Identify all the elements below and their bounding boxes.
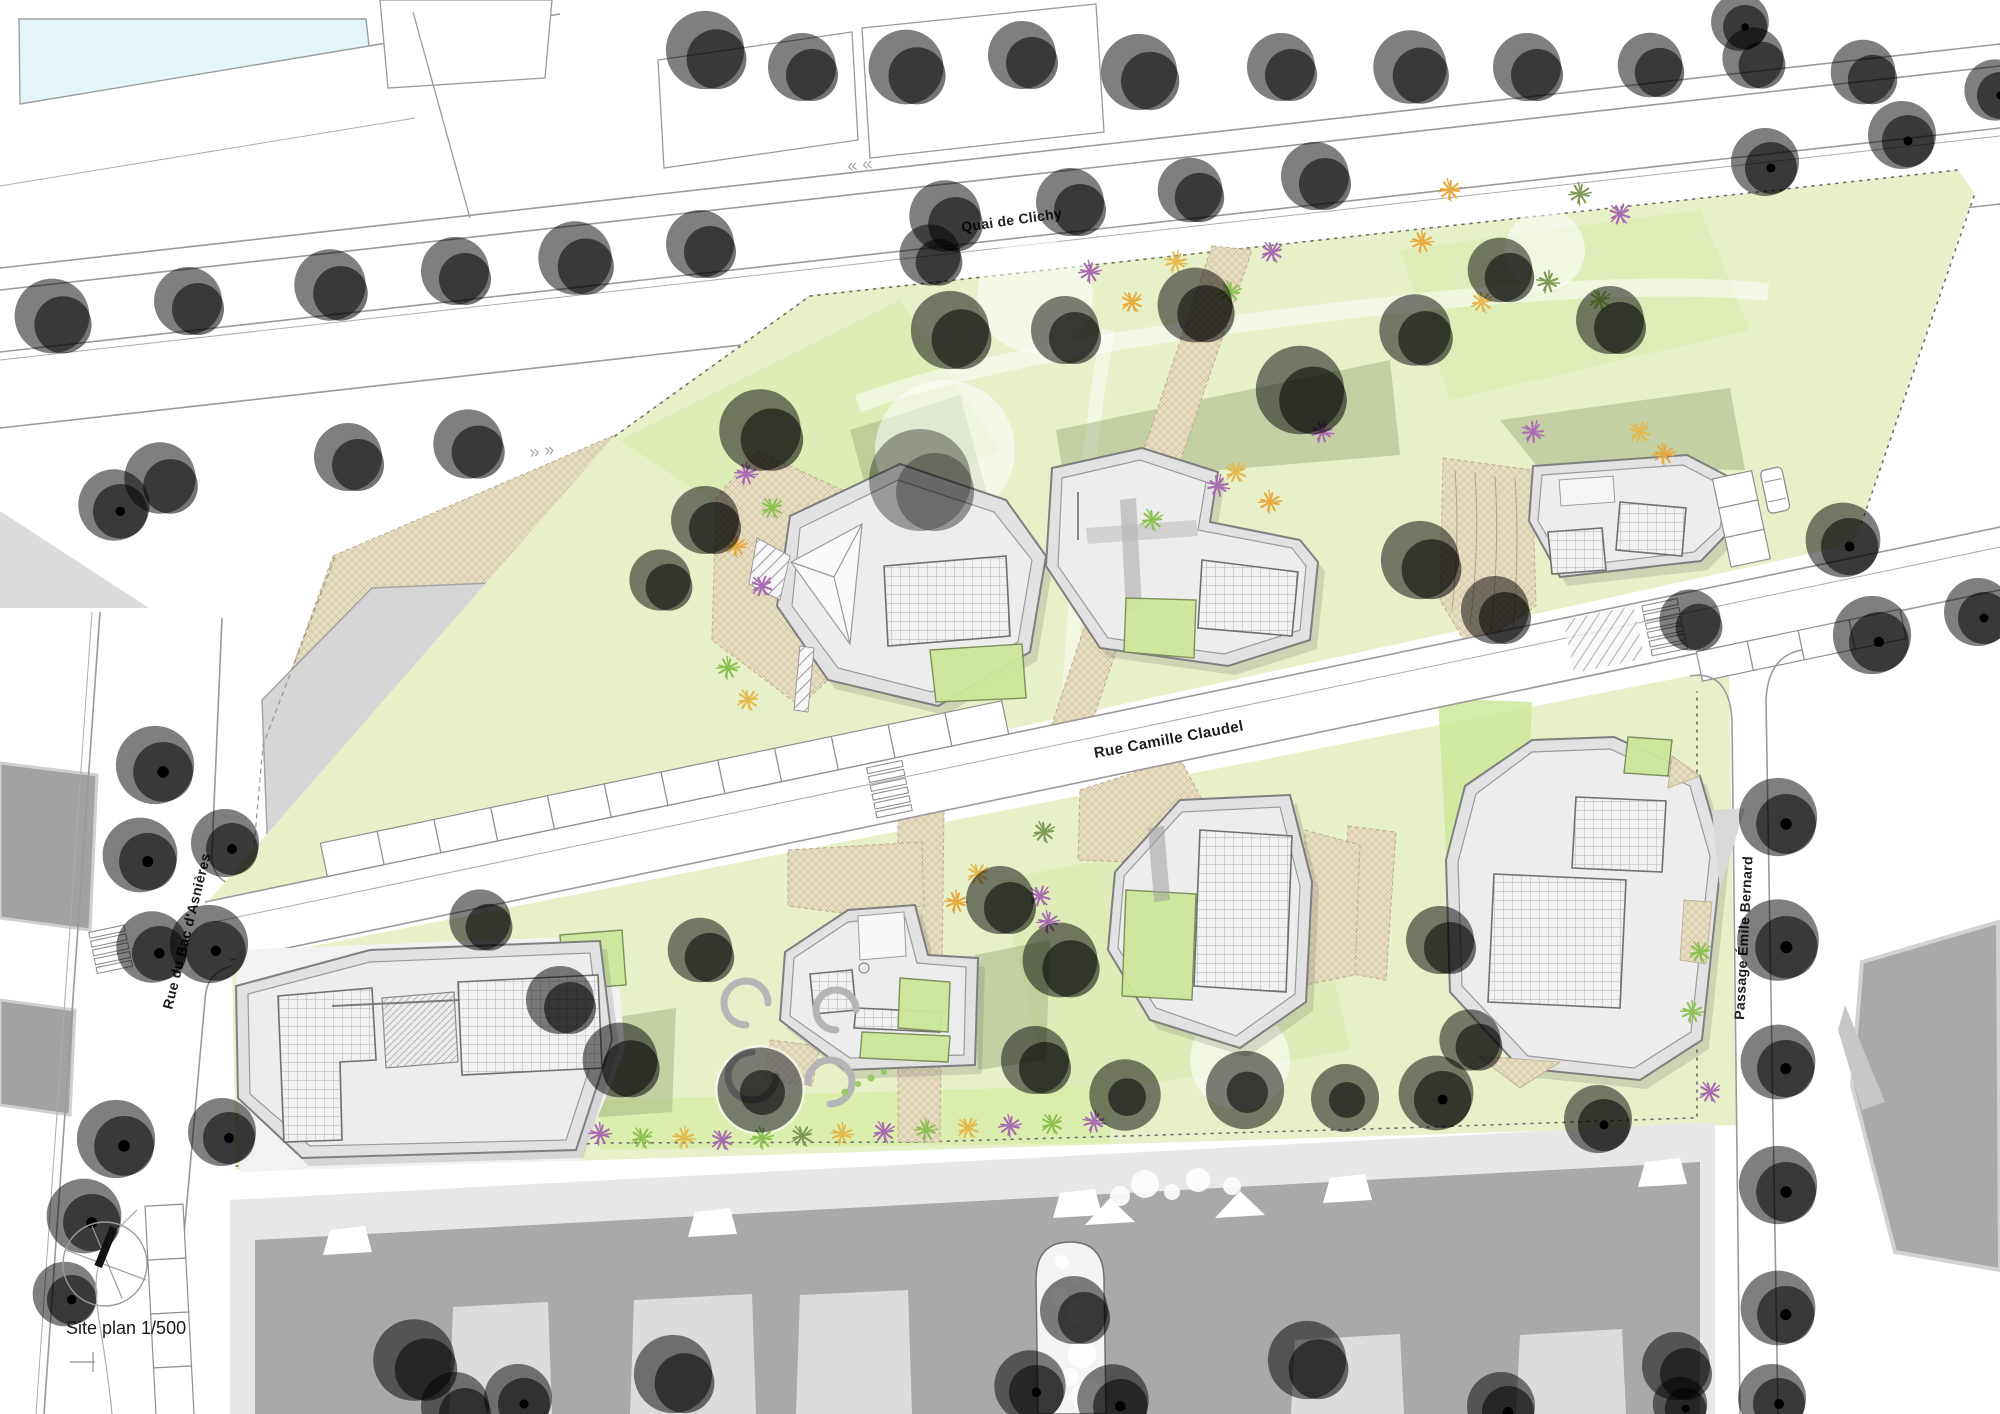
chevron-arrows-icon: » » — [528, 439, 555, 462]
site-plan-canvas: « « » » Quai de Clichy Rue du Bac d'Asni… — [0, 0, 2000, 1414]
scale-label: Site plan 1/500 — [66, 1318, 186, 1338]
site-plan-drawing: « « » » Quai de Clichy Rue du Bac d'Asni… — [0, 0, 2000, 1414]
building-s1 — [236, 930, 626, 1172]
chevron-arrows-icon: « « — [846, 153, 873, 176]
